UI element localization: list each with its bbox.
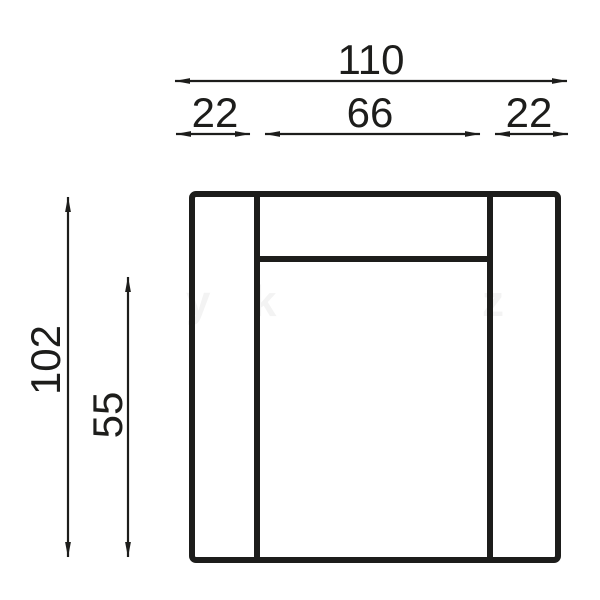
dimension-label-total-depth: 102 — [22, 325, 69, 395]
dimension-label-seat-depth: 55 — [84, 392, 131, 439]
vertical-dimensions: 102 55 — [22, 197, 131, 557]
drawing-canvas: y k z 110 22 66 22 102 55 — [0, 0, 600, 600]
watermark: y k z — [186, 277, 504, 326]
dimension-label-left-armrest: 22 — [192, 89, 239, 136]
dimension-label-right-armrest: 22 — [506, 89, 553, 136]
dimension-label-total-width: 110 — [338, 36, 405, 83]
technical-drawing-svg: y k z 110 22 66 22 102 55 — [0, 0, 600, 600]
horizontal-dimensions: 110 22 66 22 — [175, 36, 568, 136]
dimension-label-seat-width: 66 — [347, 89, 394, 136]
chair-body-outline — [192, 194, 558, 560]
chair-outline-group — [192, 194, 558, 560]
